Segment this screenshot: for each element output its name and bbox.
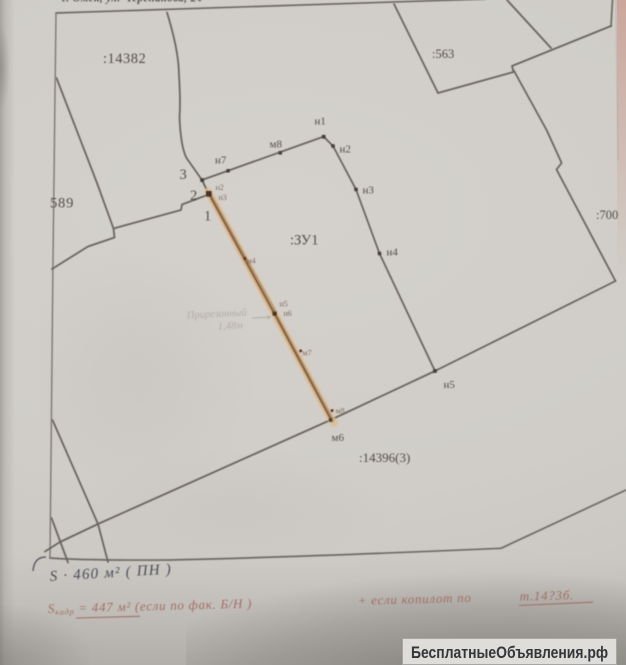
svg-text:м7: м7 <box>303 349 312 358</box>
svg-text::563: :563 <box>432 47 454 61</box>
svg-text:г. Омск, ул. Черепанова, 24: г. Омск, ул. Черепанова, 24 <box>62 0 202 5</box>
svg-text:н2: н2 <box>216 183 224 192</box>
svg-text::ЗУ1: :ЗУ1 <box>290 233 318 249</box>
svg-text:м6: м6 <box>332 432 345 444</box>
svg-text:S · 460 м² ( ПН ): S · 460 м² ( ПН ) <box>49 562 172 585</box>
svg-text:Прирезанный: Прирезанный <box>186 307 248 321</box>
svg-text:БесплатныеОбъявления.рф: БесплатныеОбъявления.рф <box>411 643 608 662</box>
svg-text:+ если копилот по: + если копилот по <box>358 590 472 608</box>
svg-text:н7: н7 <box>215 155 227 167</box>
svg-text:н5: н5 <box>444 379 456 391</box>
svg-text::14382: :14382 <box>103 51 146 67</box>
svg-text:м8: м8 <box>336 407 345 416</box>
svg-text:2: 2 <box>190 188 197 204</box>
svg-text:м4: м4 <box>247 257 256 266</box>
svg-text:н6: н6 <box>284 309 292 318</box>
svg-text:н1: н1 <box>315 116 326 128</box>
svg-text:589: 589 <box>50 196 74 212</box>
svg-text:н2: н2 <box>340 144 351 156</box>
svg-text:н4: н4 <box>387 247 399 259</box>
svg-text:м8: м8 <box>270 139 283 151</box>
svg-text::700: :700 <box>596 208 618 222</box>
svg-text::14396(3): :14396(3) <box>359 450 410 465</box>
svg-text:н3: н3 <box>219 193 227 202</box>
svg-text:н3: н3 <box>363 185 375 197</box>
svg-text:1: 1 <box>204 209 211 225</box>
svg-text:1,48м: 1,48м <box>218 320 244 332</box>
svg-text:н5: н5 <box>280 300 288 309</box>
svg-text:3: 3 <box>180 167 187 183</box>
svg-text:т.14?3б.: т.14?3б. <box>520 587 575 603</box>
svg-text:Sкадр = 447 м² (если по фак. Б: Sкадр = 447 м² (если по фак. Б/Н ) <box>48 596 253 617</box>
